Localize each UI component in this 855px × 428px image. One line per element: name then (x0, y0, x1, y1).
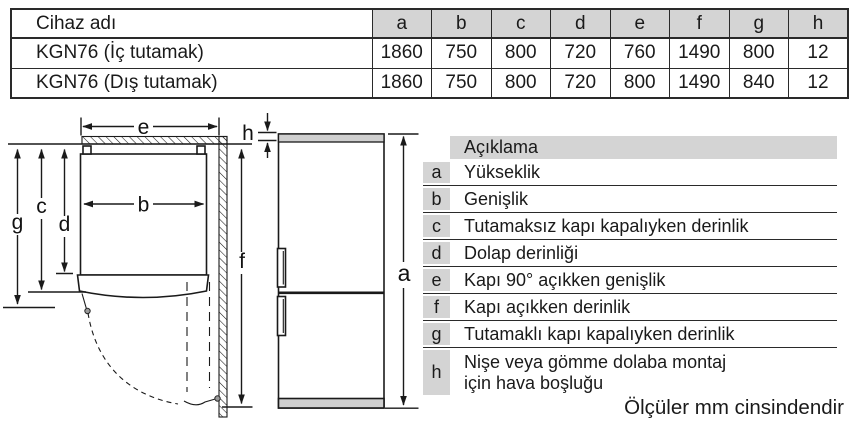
value-cell: 1490 (670, 68, 730, 98)
legend-key: c (423, 213, 450, 240)
dimension-a: a (385, 134, 419, 408)
value-cell: 800 (491, 68, 551, 98)
col-header-h: h (789, 9, 849, 38)
legend-key: f (423, 294, 450, 321)
dimension-g: g (3, 150, 55, 308)
top-view-diagram: e b g c (3, 116, 253, 417)
value-cell: 1860 (372, 38, 432, 68)
legend-row-h: h Nişe veya gömme dolaba montaj için hav… (423, 348, 837, 398)
label-h: h (242, 122, 254, 145)
value-cell: 800 (729, 38, 789, 68)
fridge-top-strip (279, 134, 385, 142)
label-d: d (59, 213, 71, 236)
label-b: b (138, 194, 150, 217)
legend-row-f: f Kapı açıkken derinlik (423, 294, 837, 321)
legend-header-key-cell (423, 136, 450, 159)
top-wall-hatch (82, 137, 227, 145)
dimensions-table-header-row: Cihaz adı a b c d e f g h (11, 9, 848, 38)
model-name: KGN76 (Dış tutamak) (11, 68, 372, 98)
legend-table: Açıklama a Yükseklik b Genişlik c Tutama… (423, 136, 837, 398)
col-header-f: f (670, 9, 730, 38)
value-cell: 12 (789, 38, 849, 68)
dimension-c: c (28, 150, 86, 293)
legend-row-b: b Genişlik (423, 186, 837, 213)
table-row: KGN76 (Dış tutamak) 1860 750 800 720 800… (11, 68, 848, 98)
lower-door-handle (278, 297, 286, 336)
side-wall-hatch (219, 137, 227, 418)
legend-key: g (423, 321, 450, 348)
legend-row-g: g Tutamaklı kapı kapalıyken derinlik (423, 321, 837, 348)
legend-key: e (423, 267, 450, 294)
legend-key: b (423, 186, 450, 213)
front-view-diagram: h a (242, 113, 418, 408)
col-header-d: d (551, 9, 611, 38)
col-header-g: g (729, 9, 789, 38)
dimension-e: e (81, 116, 219, 139)
legend-header-row: Açıklama (423, 136, 837, 159)
door-handle-top-view (82, 294, 87, 310)
label-c: c (36, 195, 47, 218)
legend-row-e: e Kapı 90° açıkken genişlik (423, 267, 837, 294)
legend-key: h (423, 348, 450, 398)
fridge-front-view (279, 134, 385, 408)
label-e: e (138, 116, 150, 139)
door-open-pivot-dot (215, 396, 220, 401)
units-caption: Ölçüler mm cinsindendir (624, 396, 844, 420)
manual-page: Cihaz adı a b c d e f g h KGN76 (İç tuta… (0, 0, 855, 428)
dimension-d: d (56, 150, 73, 274)
value-cell: 750 (432, 68, 492, 98)
legend-row-a: a Yükseklik (423, 159, 837, 186)
legend-label: Dolap derinliği (450, 240, 837, 267)
legend-label: Genişlik (450, 186, 837, 213)
table-row: KGN76 (İç tutamak) 1860 750 800 720 760 … (11, 38, 848, 68)
value-cell: 720 (551, 38, 611, 68)
door-swing-arc (88, 313, 178, 404)
legend-row-c: c Tutamaksız kapı kapalıyken derinlik (423, 213, 837, 240)
value-cell: 1490 (670, 38, 730, 68)
legend-key: a (423, 159, 450, 186)
col-header-a: a (372, 9, 432, 38)
legend-label-line1: Nişe veya gömme dolaba montaj (464, 352, 726, 372)
legend-label: Kapı 90° açıkken genişlik (450, 267, 837, 294)
legend-label-line2: için hava boşluğu (464, 373, 603, 393)
legend-key: d (423, 240, 450, 267)
legend-header: Açıklama (450, 136, 837, 159)
value-cell: 800 (610, 68, 670, 98)
label-f: f (239, 250, 245, 273)
dimensions-table: Cihaz adı a b c d e f g h KGN76 (İç tuta… (10, 8, 849, 99)
value-cell: 760 (610, 38, 670, 68)
legend-label: Tutamaksız kapı kapalıyken derinlik (450, 213, 837, 240)
legend-label: Tutamaklı kapı kapalıyken derinlik (450, 321, 837, 348)
device-name-header: Cihaz adı (11, 9, 372, 38)
label-a: a (398, 260, 411, 286)
legend-label: Yükseklik (450, 159, 837, 186)
col-header-c: c (491, 9, 551, 38)
col-header-e: e (610, 9, 670, 38)
model-name: KGN76 (İç tutamak) (11, 38, 372, 68)
legend-label: Kapı açıkken derinlik (450, 294, 837, 321)
dimension-drawing: e b g c (0, 105, 460, 428)
legend-label: Nişe veya gömme dolaba montaj için hava … (450, 348, 837, 398)
legend-row-d: d Dolap derinliği (423, 240, 837, 267)
label-g: g (12, 211, 24, 234)
handle-pivot-dot (85, 308, 90, 313)
value-cell: 840 (729, 68, 789, 98)
door-closed-top-view (78, 275, 209, 298)
value-cell: 720 (551, 68, 611, 98)
value-cell: 1860 (372, 68, 432, 98)
door-open-front (184, 399, 217, 405)
hinge-left (83, 146, 91, 154)
dimension-h: h (242, 113, 276, 158)
value-cell: 12 (789, 68, 849, 98)
upper-door-handle (278, 249, 286, 288)
value-cell: 800 (491, 38, 551, 68)
fridge-plinth (279, 399, 385, 409)
hinge-right (197, 146, 205, 154)
value-cell: 750 (432, 38, 492, 68)
col-header-b: b (432, 9, 492, 38)
